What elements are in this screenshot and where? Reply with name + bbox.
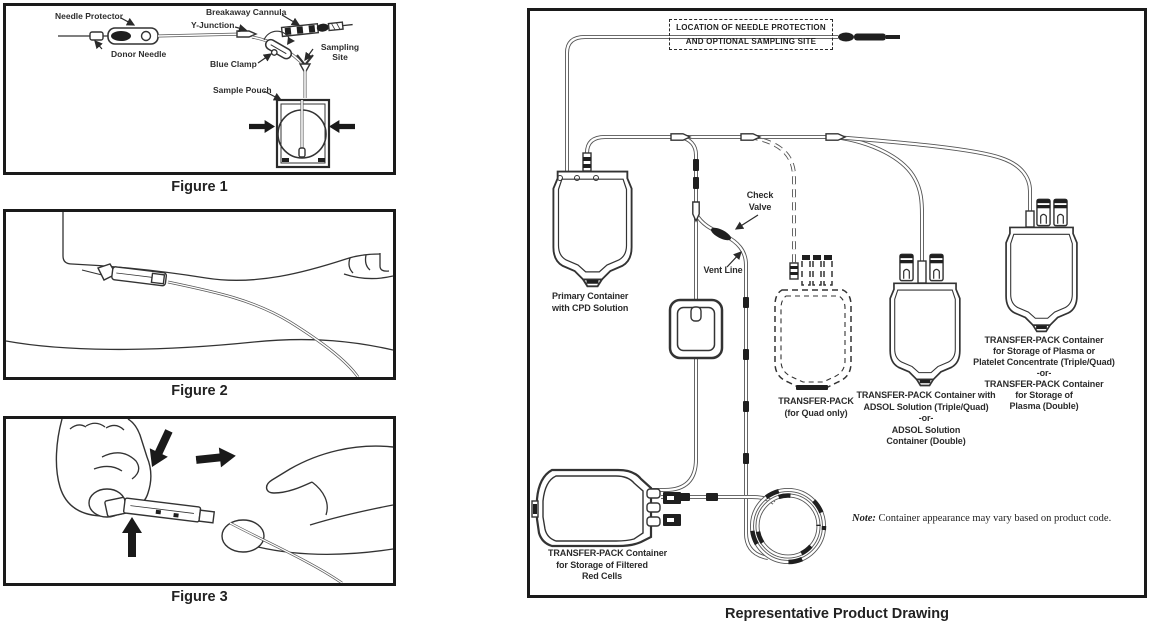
tubing-coil: [752, 490, 824, 562]
appearance-note: Note: Container appearance may vary base…: [852, 513, 1144, 524]
inserted-needle: [82, 264, 167, 286]
donor-needle-tip: [838, 33, 900, 42]
primary-container-bag: [553, 153, 631, 286]
note-prefix: Note:: [852, 513, 876, 524]
figure-1-caption: Figure 1: [3, 179, 396, 195]
figure-3-caption: Figure 3: [3, 589, 396, 605]
pull-arrow-right: [195, 446, 237, 470]
inline-filter: [670, 300, 722, 358]
figure-1-drawing: [6, 6, 393, 172]
squeeze-arrow-right: [329, 120, 355, 133]
figure-2-box: [3, 209, 396, 380]
figure-1-box: Needle Protector Donor Needle Breakaway …: [3, 3, 396, 175]
donor-needle-assembly: [58, 28, 158, 44]
breakaway-cannula-branch: [282, 20, 354, 36]
label-check-valve: Check Valve: [733, 190, 787, 213]
right-hand: [222, 446, 393, 554]
press-arrow-up: [122, 517, 142, 557]
label-breakaway-cannula: Breakaway Cannula: [206, 7, 286, 17]
product-drawing-panel: LOCATION OF NEEDLE PROTECTION AND OPTION…: [527, 8, 1147, 598]
figure-3-drawing: [6, 419, 393, 583]
adsol-container-bag: [890, 254, 960, 385]
note-text: Container appearance may vary based on p…: [876, 513, 1111, 524]
product-drawing-caption: Representative Product Drawing: [527, 606, 1147, 622]
location-note-box: LOCATION OF NEEDLE PROTECTION AND OPTION…: [669, 19, 833, 50]
label-blue-clamp: Blue Clamp: [210, 59, 257, 69]
sample-pouch: [277, 100, 329, 167]
squeeze-arrow-left: [249, 120, 275, 133]
figure-2-drawing: [6, 212, 393, 377]
label-primary-container: Primary Container with CPD Solution: [552, 291, 662, 314]
cannula-device: [105, 497, 215, 524]
figure-3-box: [3, 416, 396, 586]
label-vent-line: Vent Line: [695, 265, 751, 277]
label-plasma-pack: TRANSFER-PACK Container for Storage of P…: [959, 335, 1129, 412]
label-red-cells-pack: TRANSFER-PACK Container for Storage of F…: [548, 548, 656, 583]
press-arrow-down: [143, 427, 178, 472]
plasma-container-bag: [1006, 199, 1077, 331]
label-donor-needle: Donor Needle: [111, 49, 166, 59]
label-sampling-site: Sampling Site: [318, 42, 362, 62]
red-cells-container-bag: [532, 470, 681, 546]
label-sample-pouch: Sample Pouch: [213, 85, 272, 95]
figure-2-caption: Figure 2: [3, 383, 396, 399]
label-needle-protector: Needle Protector: [55, 11, 123, 21]
label-y-junction: Y-Junction: [191, 20, 234, 30]
quad-transfer-pack-bag: [775, 255, 851, 390]
arm-outline: [6, 212, 393, 350]
document-page: Needle Protector Donor Needle Breakaway …: [0, 0, 1150, 630]
